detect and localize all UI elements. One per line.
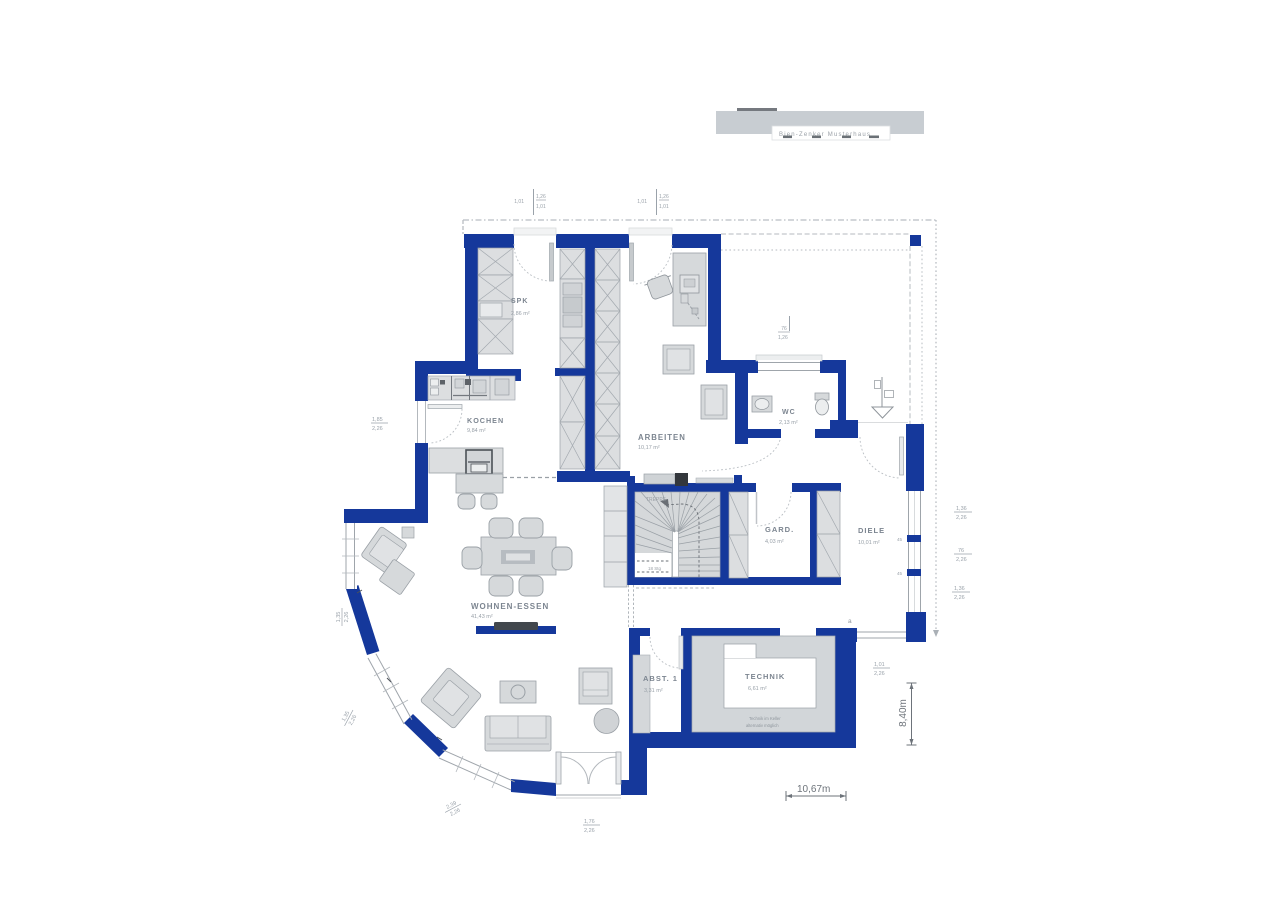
svg-text:TREPPE: TREPPE [646, 497, 667, 503]
svg-text:ABST. 1: ABST. 1 [643, 674, 678, 683]
svg-text:2,13 m²: 2,13 m² [779, 420, 798, 426]
svg-text:2,86 m²: 2,86 m² [511, 311, 530, 317]
svg-text:1,26: 1,26 [659, 194, 669, 200]
svg-text:GARD.: GARD. [765, 525, 794, 534]
svg-text:2,26: 2,26 [344, 612, 350, 623]
svg-text:10,67m: 10,67m [797, 784, 830, 795]
svg-text:6,61 m²: 6,61 m² [748, 686, 767, 692]
svg-text:1,01: 1,01 [874, 662, 885, 668]
svg-text:1,26: 1,26 [778, 335, 788, 341]
svg-text:1,01: 1,01 [514, 199, 524, 205]
svg-text:2,26: 2,26 [874, 671, 885, 677]
svg-text:1,35: 1,35 [336, 612, 342, 623]
svg-text:8,40m: 8,40m [898, 699, 909, 727]
svg-text:ARBEITEN: ARBEITEN [638, 433, 686, 442]
svg-text:KOCHEN: KOCHEN [467, 416, 504, 425]
svg-text:2,26: 2,26 [956, 515, 967, 521]
svg-text:76: 76 [781, 326, 787, 332]
svg-text:10,01 m²: 10,01 m² [858, 540, 880, 546]
svg-text:45: 45 [897, 571, 903, 576]
svg-text:Technik im Keller: Technik im Keller [749, 716, 781, 721]
svg-text:1,01: 1,01 [659, 204, 669, 210]
svg-text:3,31 m²: 3,31 m² [644, 688, 663, 694]
svg-text:TECHNIK: TECHNIK [745, 672, 785, 681]
svg-text:1,01: 1,01 [536, 204, 546, 210]
svg-text:DIELE: DIELE [858, 526, 885, 535]
svg-text:2,26: 2,26 [954, 595, 965, 601]
svg-text:1,26: 1,26 [536, 194, 546, 200]
svg-text:1,76: 1,76 [584, 819, 595, 825]
svg-text:41,43 m²: 41,43 m² [471, 614, 493, 620]
svg-text:a: a [848, 618, 852, 625]
svg-text:76: 76 [958, 548, 964, 554]
svg-text:9,84 m²: 9,84 m² [467, 428, 486, 434]
svg-text:10,17 m²: 10,17 m² [638, 445, 660, 451]
svg-text:WC: WC [782, 409, 796, 416]
svg-text:SPK: SPK [511, 298, 528, 305]
svg-text:alternativ möglich: alternativ möglich [746, 723, 779, 728]
svg-text:2,26: 2,26 [956, 557, 967, 563]
svg-text:45: 45 [897, 537, 903, 542]
svg-text:2,26: 2,26 [584, 828, 595, 834]
svg-text:1,85: 1,85 [372, 417, 383, 423]
svg-text:1,36: 1,36 [956, 506, 967, 512]
svg-text:WOHNEN-ESSEN: WOHNEN-ESSEN [471, 602, 549, 611]
svg-text:18 Stg: 18 Stg [648, 566, 662, 571]
svg-text:Bien-Zenker Musterhaus: Bien-Zenker Musterhaus [779, 132, 871, 138]
svg-text:1,36: 1,36 [954, 586, 965, 592]
svg-text:4,03 m²: 4,03 m² [765, 539, 784, 545]
svg-text:2,26: 2,26 [372, 426, 383, 432]
svg-text:1,01: 1,01 [637, 199, 647, 205]
